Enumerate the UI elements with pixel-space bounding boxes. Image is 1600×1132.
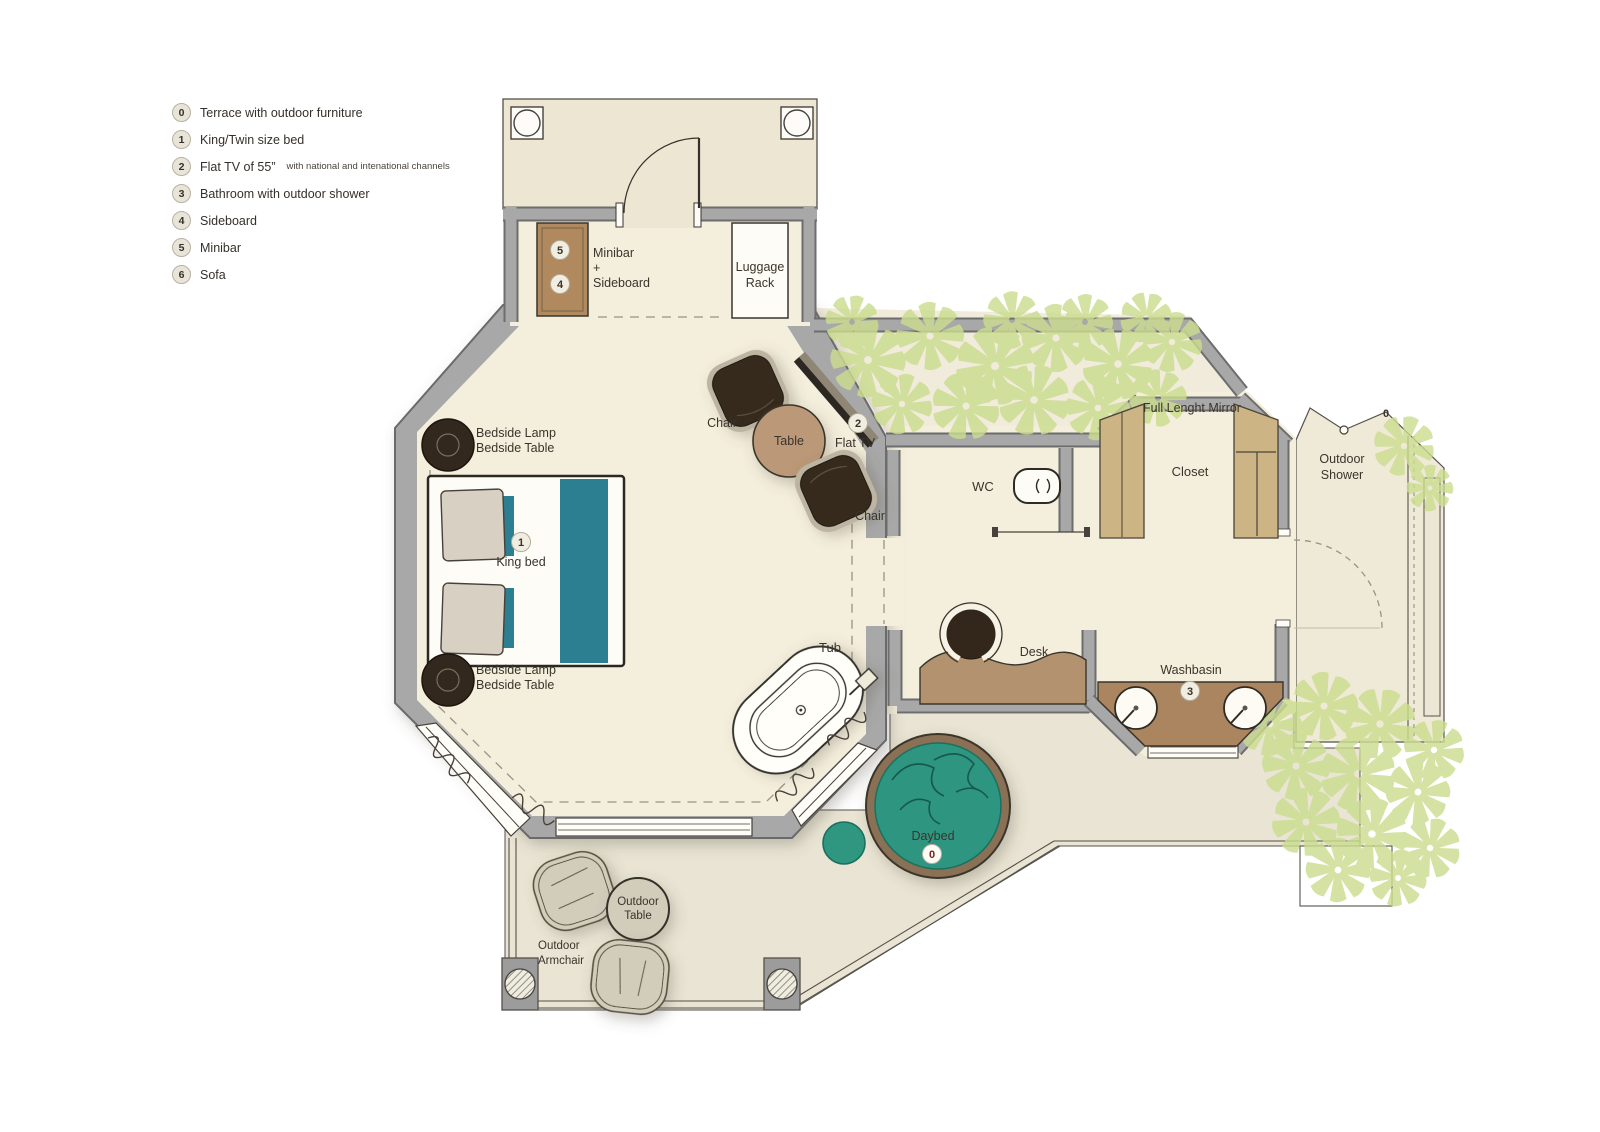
closet-left-wardrobe — [1100, 404, 1144, 538]
legend-item: 1 King/Twin size bed — [172, 131, 450, 148]
legend-badge: 5 — [172, 238, 191, 257]
luggage-rack-label: Luggage — [736, 260, 785, 274]
legend-item: 4 Sideboard — [172, 212, 450, 229]
legend-label: Minibar — [200, 241, 241, 255]
legend-badge: 1 — [172, 130, 191, 149]
marker-daybed: 0 — [923, 845, 942, 864]
shower-bench — [1424, 478, 1440, 716]
minibar-label: Sideboard — [593, 276, 650, 290]
king-bed-label: King bed — [496, 555, 545, 569]
bedside-table-bottom — [422, 654, 474, 706]
outdoor-table-label: Outdoor — [617, 896, 659, 908]
closet-right-wardrobe — [1234, 404, 1278, 538]
bedside-label-top: Bedside Table — [476, 441, 554, 455]
king-bed — [428, 476, 624, 666]
bedside-label-top: Bedside Lamp — [476, 426, 556, 440]
porch-post — [511, 107, 543, 139]
outdoor-table — [607, 878, 669, 940]
wc-toilet — [1014, 469, 1060, 503]
legend-item: 0 Terrace with outdoor furniture — [172, 104, 450, 121]
entry-porch — [503, 99, 817, 209]
mirror-label: Full Lenght Mirror — [1143, 401, 1241, 415]
svg-text:3: 3 — [1187, 686, 1193, 698]
basin — [1224, 687, 1266, 729]
minibar-label: Minibar — [593, 246, 634, 260]
legend-badge: 2 — [172, 157, 191, 176]
svg-text:4: 4 — [557, 279, 564, 291]
pouf — [823, 822, 865, 864]
fence-hinge — [1340, 426, 1348, 434]
svg-text:2: 2 — [855, 418, 861, 430]
pillow — [441, 489, 505, 561]
svg-text:1: 1 — [518, 537, 524, 549]
legend-badge: 6 — [172, 265, 191, 284]
legend-note: with national and intenational channels — [287, 161, 450, 172]
minibar-label: + — [593, 261, 600, 275]
marker-minibar: 5 — [551, 241, 570, 260]
legend-item: 3 Bathroom with outdoor shower — [172, 185, 450, 202]
marker-sideboard: 4 — [551, 275, 570, 294]
legend-label: Sofa — [200, 268, 226, 282]
porch-post — [781, 107, 813, 139]
legend-label: Terrace with outdoor furniture — [200, 106, 363, 120]
outdoor-table-label: Table — [624, 910, 652, 922]
legend: 0 Terrace with outdoor furniture 1 King/… — [172, 104, 450, 293]
desk-chair — [940, 603, 1002, 662]
entry-door-opening — [622, 202, 694, 228]
terrace-post — [502, 958, 538, 1010]
outdoor-armchair-label: Armchair — [538, 955, 584, 967]
bedside-label-bottom: Bedside Table — [476, 678, 554, 692]
legend-label: Sideboard — [200, 214, 257, 228]
outdoor-armchair-2 — [588, 937, 671, 1017]
closet-label: Closet — [1172, 464, 1209, 479]
window — [556, 818, 752, 836]
luggage-rack-label: Rack — [746, 276, 775, 290]
outdoor-shower-label: Shower — [1321, 468, 1363, 482]
legend-badge: 4 — [172, 211, 191, 230]
pillow — [441, 583, 505, 655]
chair-label: Chair — [707, 416, 737, 430]
legend-badge: 0 — [172, 103, 191, 122]
svg-text:5: 5 — [557, 245, 563, 257]
outdoor-shower-label: Outdoor — [1319, 452, 1364, 466]
bedside-table-top — [422, 419, 474, 471]
marker-bed: 1 — [512, 533, 531, 552]
marker-washbasin: 3 — [1181, 682, 1200, 701]
desk-label: Desk — [1020, 645, 1049, 659]
legend-item: 6 Sofa — [172, 266, 450, 283]
legend-item: 5 Minibar — [172, 239, 450, 256]
legend-badge: 3 — [172, 184, 191, 203]
daybed-label: Daybed — [911, 829, 954, 843]
outdoor-armchair-label: Outdoor — [538, 940, 580, 952]
tub-label: Tub — [819, 640, 841, 655]
legend-label: King/Twin size bed — [200, 133, 304, 147]
basin — [1115, 687, 1157, 729]
marker-tv: 2 — [849, 414, 868, 433]
chair-label: Chair — [855, 509, 885, 523]
flat-tv-label: Flat TV — [835, 436, 876, 450]
legend-item: 2 Flat TV of 55” with national and inten… — [172, 158, 450, 175]
minibar-sideboard-cabinet — [537, 223, 588, 316]
svg-text:0: 0 — [929, 849, 935, 861]
terrace-post — [764, 958, 800, 1010]
legend-label: Flat TV of 55” — [200, 160, 276, 174]
floor-plan-page: 0 Terrace with outdoor furniture 1 King/… — [0, 0, 1600, 1132]
legend-label: Bathroom with outdoor shower — [200, 187, 370, 201]
marker-shower: 0 — [1383, 408, 1389, 420]
bedside-label-bottom: Bedside Lamp — [476, 663, 556, 677]
table-label: Table — [774, 434, 804, 448]
wc-label: WC — [972, 479, 994, 494]
bed-runner — [560, 479, 608, 663]
washbasin-label: Washbasin — [1160, 663, 1221, 677]
